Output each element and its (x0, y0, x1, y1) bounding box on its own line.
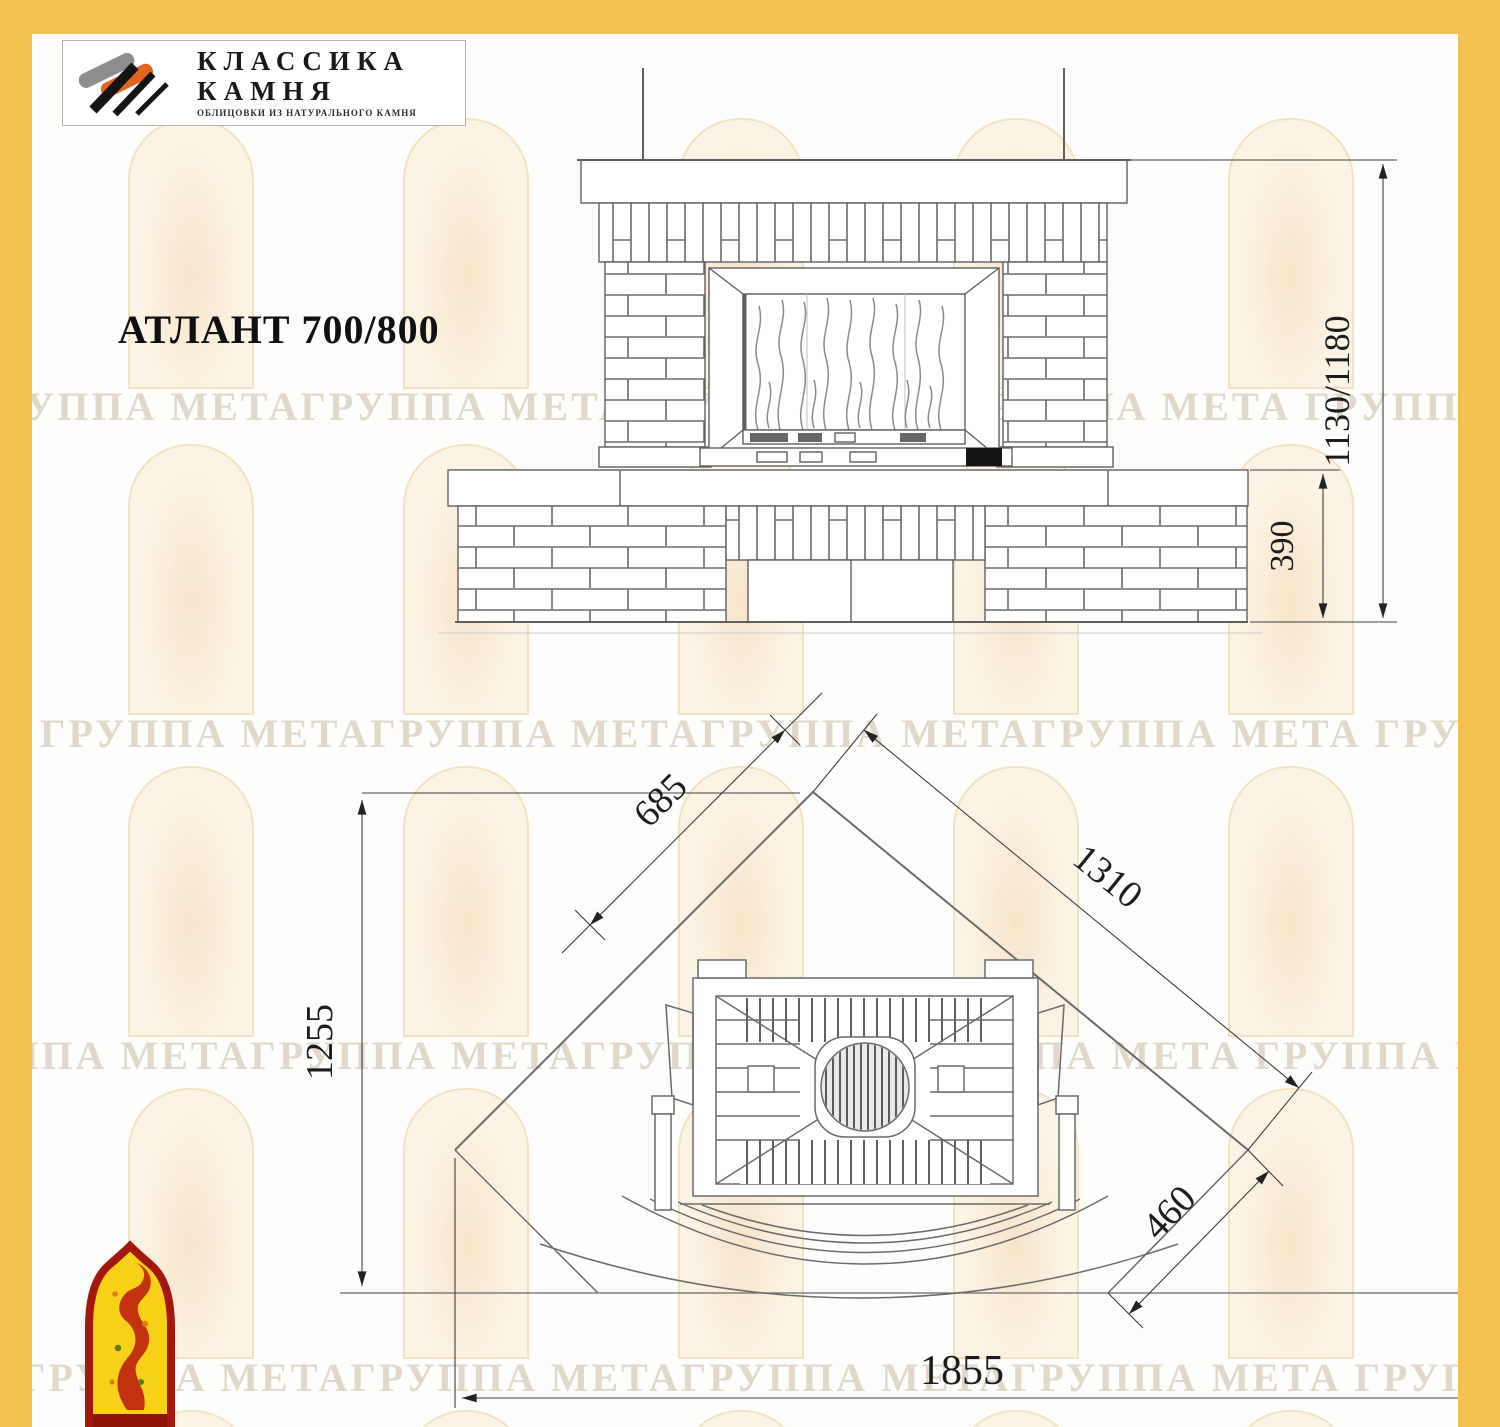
hearth-slab (448, 470, 1248, 506)
brand-tagline: ОБЛИЦОВКИ ИЗ НАТУРАЛЬНОГО КАМНЯ (197, 109, 417, 118)
dim-height: 1130/1180 (1317, 315, 1357, 466)
brand-name-line2: КАМНЯ (197, 78, 417, 105)
dim-depth: 1255 (299, 1004, 341, 1080)
dim-width: 1855 (920, 1348, 1004, 1394)
catalog-page: ГРУППА МЕТАГРУППА МЕТАГРУППА МЕТАГРУППА … (0, 0, 1500, 1427)
brand-logo: КЛАССИКА КАМНЯ ОБЛИЦОВКИ ИЗ НАТУРАЛЬНОГО… (62, 40, 466, 126)
mantel-shelf (581, 160, 1127, 203)
dim-base-height: 390 (1264, 521, 1301, 572)
technical-drawing: 1130/1180 390 (0, 0, 1500, 1427)
dim-front: 1310 (1065, 836, 1150, 916)
brick-frieze (599, 203, 1107, 262)
flame-emblem (85, 1232, 175, 1427)
dim-side: 460 (1134, 1178, 1204, 1248)
brand-name-line1: КЛАССИКА (197, 48, 417, 75)
firebox-glass (743, 294, 965, 430)
left-plinth (599, 447, 711, 467)
dim-left-face: 685 (626, 766, 696, 836)
chimney-lines (643, 68, 1064, 160)
page-title: АТЛАНТ 700/800 (118, 306, 440, 353)
brand-logo-icon (79, 50, 187, 116)
left-pillar (605, 262, 705, 447)
right-pillar (1003, 262, 1107, 447)
right-yellow-band (1458, 0, 1500, 1427)
door-handle (966, 448, 1002, 466)
left-yellow-band (0, 0, 32, 1427)
corner-plan (340, 792, 1500, 1298)
base-left-brick (458, 506, 726, 622)
front-elevation (438, 68, 1262, 633)
base-soldier-band (726, 506, 985, 560)
door-sill (700, 448, 1012, 466)
base-right-brick (985, 506, 1247, 622)
top-yellow-band (0, 0, 1500, 34)
right-plinth (997, 447, 1113, 467)
